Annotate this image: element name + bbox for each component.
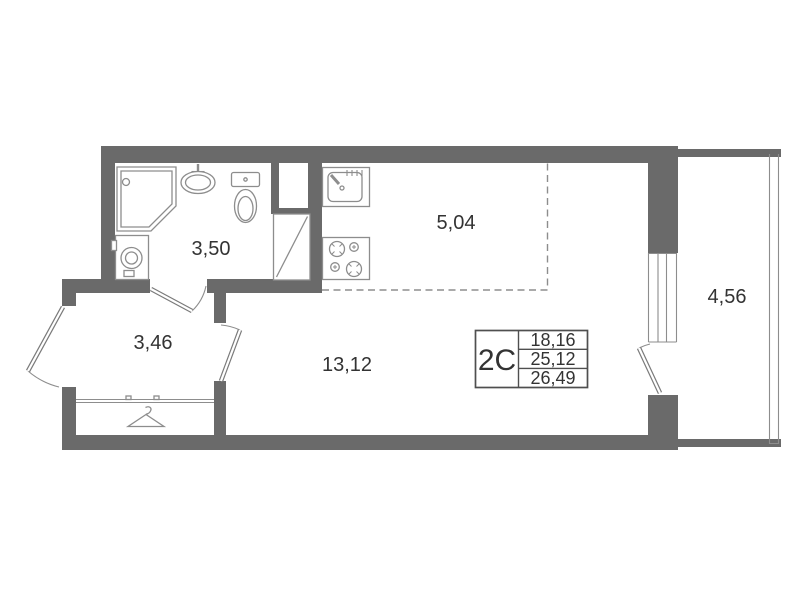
living-room-area-label: 13,12 [322, 354, 372, 376]
wall-balcony-bottom [676, 439, 781, 447]
wardrobe [76, 396, 214, 427]
info-value-1: 18,16 [530, 330, 575, 350]
wall-balcony-top [678, 149, 781, 157]
wall-top [101, 146, 678, 163]
rod-hook [126, 396, 131, 400]
rod-hook [154, 396, 159, 400]
kitchen-sink [323, 168, 370, 207]
balcony-glazing [770, 154, 779, 444]
opening-window [646, 253, 680, 342]
apartment-info-box: 2С 18,16 25,12 26,49 [476, 330, 588, 388]
washbasin [181, 164, 215, 194]
wall-niche-sill [271, 208, 322, 214]
niche-cupboard [274, 214, 311, 280]
hallway-area-label: 3,46 [134, 332, 173, 354]
wall-entry-stub [62, 290, 76, 306]
balcony-area-label: 4,56 [708, 286, 747, 308]
floor-plan: 3,50 5,04 3,46 13,12 4,56 2С 18,16 25,12… [0, 0, 799, 600]
kitchen-area-label: 5,04 [437, 212, 476, 234]
toilet [232, 173, 260, 223]
washing-machine [112, 236, 149, 280]
apartment-type-label: 2С [478, 344, 516, 377]
stove [323, 238, 370, 280]
info-value-2: 25,12 [530, 349, 575, 369]
wall-bathroom-left [101, 146, 115, 292]
bathroom-area-label: 3,50 [192, 238, 231, 260]
wall-bottom [62, 435, 678, 450]
info-value-3: 26,49 [530, 368, 575, 388]
shower-cabin [117, 167, 176, 231]
floor-plan-drawing: 3,50 5,04 3,46 13,12 4,56 2С 18,16 25,12… [0, 0, 799, 600]
hanger-icon [128, 407, 164, 427]
entrance-door [28, 307, 63, 387]
wall-niche-left [271, 163, 279, 212]
